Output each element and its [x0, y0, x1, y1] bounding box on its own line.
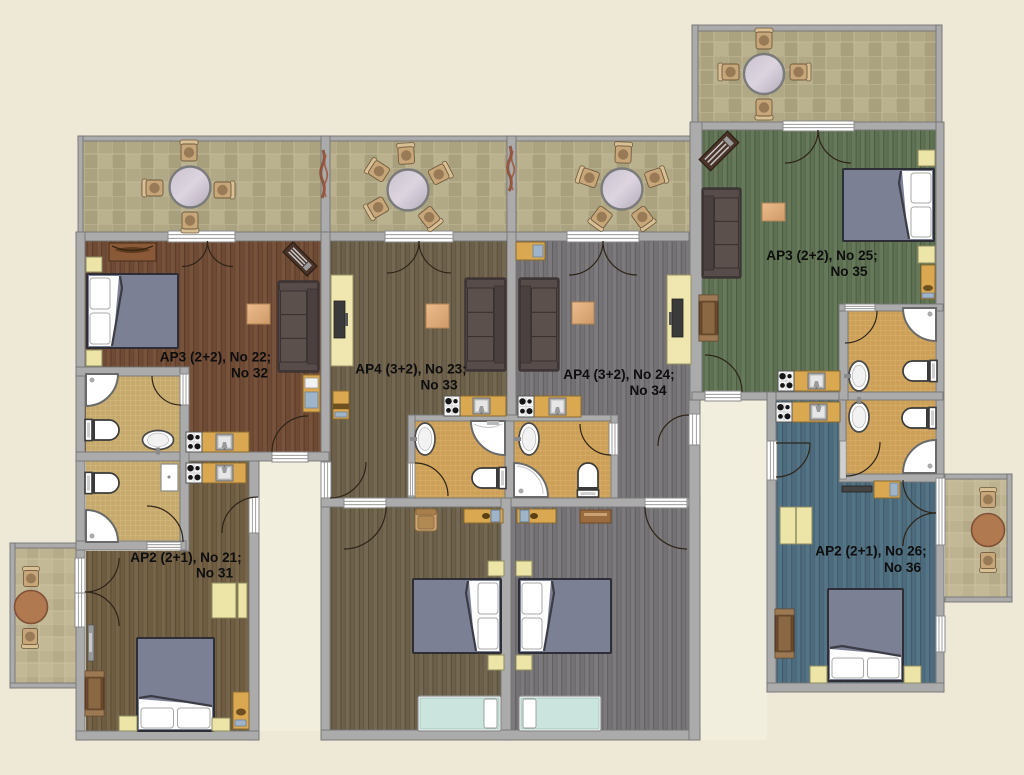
svg-text:AP2 (2+1), No 26;: AP2 (2+1), No 26; — [815, 544, 926, 559]
svg-text:AP3 (2+2), No 25;: AP3 (2+2), No 25; — [766, 248, 877, 263]
svg-text:No 33: No 33 — [420, 378, 457, 393]
svg-text:AP3 (2+2), No 22;: AP3 (2+2), No 22; — [160, 350, 271, 365]
svg-text:No 34: No 34 — [629, 383, 666, 398]
svg-text:AP2 (2+1), No 21;: AP2 (2+1), No 21; — [130, 550, 241, 565]
svg-text:No 36: No 36 — [884, 560, 921, 575]
svg-text:No 35: No 35 — [830, 264, 867, 279]
svg-text:No 31: No 31 — [196, 566, 233, 581]
svg-text:AP4 (3+2), No 23;: AP4 (3+2), No 23; — [355, 362, 466, 377]
svg-text:AP4 (3+2), No 24;: AP4 (3+2), No 24; — [563, 367, 674, 382]
svg-text:No 32: No 32 — [231, 366, 268, 381]
